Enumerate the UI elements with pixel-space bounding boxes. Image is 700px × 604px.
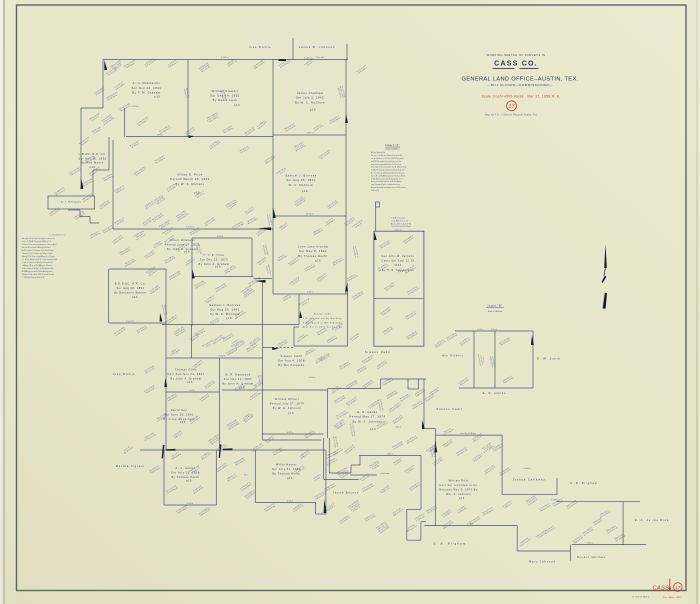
svg-text:A Corr Sketch Sur: A Corr Sketch Sur bbox=[371, 151, 385, 154]
svg-text:By Wm Kingman: By Wm Kingman bbox=[278, 363, 304, 367]
svg-text:1 T at this being B in B: 1 T at this being B in BTS l Paine being… bbox=[22, 258, 57, 261]
svg-text:p16: p16 bbox=[370, 427, 376, 431]
svg-text:4 w7.4: 4 w7.4 bbox=[395, 427, 400, 429]
svg-text:Wm. A. Johnson: Wm. A. Johnson bbox=[446, 493, 471, 496]
svg-text:James Chatham: James Chatham bbox=[297, 91, 324, 95]
svg-text:Cor 4 Bg 970 A Dys: Cor 4 Bg 970 A Dys bbox=[460, 432, 476, 435]
svg-text:p16: p16 bbox=[90, 166, 96, 169]
svg-text:4 960 d: 4 960 d bbox=[217, 236, 223, 238]
svg-text:W 960 m: W 960 m bbox=[218, 356, 226, 358]
svg-text:a Affaug 1 B an a M B Affaug: a Affaug 1 B an a M B Affaug in Theory a bbox=[22, 264, 53, 267]
svg-text:4 411 vs: 4 411 vs bbox=[587, 543, 594, 545]
svg-text:E. W. Smith: E. W. Smith bbox=[537, 357, 560, 361]
svg-text:T B A 975 and by Certs to: T B A 975 and by Certs to Thomas B up th… bbox=[371, 169, 405, 172]
svg-text:6 W76 d: 6 W76 d bbox=[132, 106, 139, 108]
svg-text:2 879 m: 2 879 m bbox=[387, 454, 394, 456]
svg-text:Martha Ingram: Martha Ingram bbox=[116, 464, 145, 468]
svg-text:W at: W at bbox=[244, 474, 248, 477]
svg-text:p16: p16 bbox=[310, 108, 316, 112]
svg-text:p16: p16 bbox=[287, 477, 293, 480]
svg-text:4 040.8: 4 040.8 bbox=[287, 501, 293, 503]
svg-text:By John A. Graham: By John A. Graham bbox=[170, 377, 201, 380]
svg-text:David Key: David Key bbox=[171, 409, 188, 412]
svg-text:it has in Thomas in Worth: it has in Thomas in Worth the Prairie co… bbox=[22, 261, 53, 264]
svg-text:Bryant Holmes: Bryant Holmes bbox=[577, 555, 606, 559]
svg-text:4 970 m: 4 970 m bbox=[309, 377, 316, 379]
svg-text:corr Thomas B with a y A: corr Thomas B with a y Arocha to line bbox=[371, 183, 400, 186]
svg-text:Jose Richie: Jose Richie bbox=[112, 372, 135, 376]
svg-text:p16: p16 bbox=[226, 316, 232, 320]
svg-text:4 4/7 s: 4 4/7 s bbox=[287, 432, 292, 434]
svg-text:p16: p16 bbox=[180, 421, 186, 424]
svg-text:Thomas Co a an theire are: Thomas Co a an theire are King in sworn bbox=[22, 252, 53, 255]
svg-text:4 762 s: 4 762 s bbox=[307, 292, 313, 294]
svg-text:By John A. Graham: By John A. Graham bbox=[198, 263, 229, 266]
svg-text:w 2069 d: w 2069 d bbox=[523, 468, 530, 470]
svg-text:Alfred B. Price: Alfred B. Price bbox=[177, 173, 202, 177]
svg-text:Affaug 1/7 B S an a relin: Affaug 1/7 B S an a relin Affaug 6 in Th… bbox=[22, 255, 55, 258]
svg-text:W 2069 vs: W 2069 vs bbox=[551, 500, 560, 502]
svg-text:Map No 4 A. J. District Reco: Map No 4 A. J. District Records Austin, … bbox=[485, 113, 538, 116]
svg-text:sur B charters for To Rick 11: sur B charters for To Rick 11875 Eng by … bbox=[371, 157, 404, 160]
svg-text:17: 17 bbox=[675, 585, 681, 590]
svg-text:WORKING SKETCH OF SURVEYS IN: WORKING SKETCH OF SURVEYS IN bbox=[487, 53, 546, 57]
svg-text:William Pole: William Pole bbox=[449, 480, 469, 483]
svg-text:2 870 vs: 2 870 vs bbox=[395, 230, 402, 232]
svg-text:—BILL ALCORN—COMMISSIONER—: —BILL ALCORN—COMMISSIONER— bbox=[487, 83, 553, 87]
svg-text:line in a locality but Su: line in a locality but Sur To B M B Affi… bbox=[371, 180, 402, 183]
svg-text:S. B. Brigham: S. B. Brigham bbox=[434, 542, 467, 546]
svg-text:A 297 endors In Thomas S a: A 297 endors In Thomas S an Worth lower bbox=[22, 249, 54, 252]
svg-text:B.B.B.&C. R.R. Co.: B.B.B.&C. R.R. Co. bbox=[115, 283, 146, 286]
svg-text:Simeon Cadil: Simeon Cadil bbox=[436, 407, 462, 411]
svg-text:Court Sur Sept 12-18: Court Sur Sept 12-18 bbox=[382, 260, 415, 263]
svg-text:Persud March 25, 1842: Persud March 25, 1842 bbox=[170, 177, 210, 181]
svg-text:Persud July 27, 1874: Persud July 27, 1874 bbox=[270, 402, 305, 405]
svg-text:Sur Aug 28, 1892: Sur Aug 28, 1892 bbox=[116, 287, 144, 290]
svg-text:4 1474 vs: 4 1474 vs bbox=[186, 227, 194, 229]
svg-text:4 043 4: 4 043 4 bbox=[187, 503, 193, 505]
svg-text:p16: p16 bbox=[215, 266, 221, 269]
svg-text:Cert Sur recorded in Co: Cert Sur recorded in Co bbox=[440, 484, 478, 487]
svg-text:T g 122.8: T g 122.8 bbox=[126, 321, 134, 323]
svg-text:Geo John W. Jackson: Geo John W. Jackson bbox=[382, 256, 415, 258]
svg-text:Sur Nov 22, 1841: Sur Nov 22, 1841 bbox=[132, 86, 162, 90]
svg-text:Thomas B an trace lined p: Thomas B an trace lined papers in the or… bbox=[22, 243, 57, 246]
svg-text:By John H. Graham: By John H. Graham bbox=[222, 382, 253, 385]
svg-text:Scale 1"=2000 vs: Scale 1"=2000 vs bbox=[386, 149, 400, 151]
svg-text:By Benjamin Warner: By Benjamin Warner bbox=[114, 292, 147, 295]
svg-text:James W. Johnson: James W. Johnson bbox=[299, 45, 335, 49]
svg-text:Samuel J. Burress: Samuel J. Burress bbox=[285, 174, 316, 178]
svg-text:2 Ter vs: 2 Ter vs bbox=[491, 329, 497, 331]
svg-text:in the By Emanuel sur B r: in the By Emanuel sur B rise by the str … bbox=[371, 177, 403, 180]
svg-text:By W. S. Mullens: By W. S. Mullens bbox=[175, 182, 204, 186]
svg-text:Sur the B let a and B A: Sur the B let a and B Affaug S/E Mrs It bbox=[22, 246, 51, 249]
svg-text:W 760 vs: W 760 vs bbox=[306, 214, 314, 216]
svg-text:Scale 1inch=4000 Varas Mar 1: Scale 1inch=4000 Varas Mar 17, 1958 R. B… bbox=[482, 94, 561, 98]
svg-text:E. D. Hanks: E. D. Hanks bbox=[357, 410, 377, 414]
svg-text:E. D. Hanks: E. D. Hanks bbox=[483, 391, 507, 395]
svg-text:3 970 vs: 3 970 vs bbox=[307, 133, 314, 135]
svg-text:W. R. Hammond: W. R. Hammond bbox=[225, 374, 251, 377]
svg-text:B the an one in B Bay -: B the an one in B Bay - In that but are … bbox=[22, 267, 53, 270]
svg-text:p16: p16 bbox=[186, 480, 192, 483]
svg-text:Sur Dec 13, 1873: Sur Dec 13, 1873 bbox=[200, 258, 228, 261]
svg-text:Willis Hester: Willis Hester bbox=[276, 464, 297, 467]
svg-text:By W. C. McClure: By W. C. McClure bbox=[295, 100, 325, 104]
svg-text:p16: p16 bbox=[234, 103, 240, 107]
svg-text:p16: p16 bbox=[315, 259, 321, 263]
svg-text:CASS CO.: CASS CO. bbox=[494, 61, 538, 68]
svg-text:Simeon Cadil: Simeon Cadil bbox=[280, 354, 302, 358]
svg-text:p16: p16 bbox=[288, 412, 294, 415]
svg-text:Jn 70.8 13 Mi/Km: Jn 70.8 13 Mi/Km bbox=[632, 597, 649, 599]
svg-text:p16: p16 bbox=[154, 95, 160, 99]
svg-text:Insert "A": Insert "A" bbox=[385, 143, 400, 147]
svg-text:p16: p16 bbox=[302, 189, 308, 193]
svg-text:4 1700 vs: 4 1700 vs bbox=[221, 57, 229, 59]
svg-text:p16: p16 bbox=[187, 381, 193, 384]
svg-text:E. A. de los Rios: E. A. de los Rios bbox=[635, 518, 669, 522]
svg-text:Simeon Cadil: Simeon Cadil bbox=[365, 350, 391, 354]
svg-text:GENERAL LAND OFFICE–AUSTIN, TE: GENERAL LAND OFFICE–AUSTIN, TEX. bbox=[461, 77, 578, 83]
svg-text:Mary Johnson: Mary Johnson bbox=[529, 559, 556, 563]
svg-text:Persud May 17, 1874: Persud May 17, 1874 bbox=[350, 415, 386, 419]
svg-text:Sur Aug 4, 1838: Sur Aug 4, 1838 bbox=[278, 358, 305, 362]
svg-text:Cross Bd Line Cor Sd: Cross Bd Line Cor Sd bbox=[391, 219, 408, 222]
svg-text:Jacob Betson: Jacob Betson bbox=[333, 491, 360, 495]
svg-text:Essential in Sur cheek but: Essential in Sur cheek but Sur B 1683 to… bbox=[371, 166, 406, 169]
svg-text:Sur Aug 26, 1841: Sur Aug 26, 1841 bbox=[210, 308, 240, 312]
svg-text:By Thomas Hecht: By Thomas Hecht bbox=[298, 254, 328, 258]
svg-text:rule aht B concluded TB: rule aht B concluded TB in To 306 B of bbox=[371, 163, 401, 166]
svg-text:By W. A. Johnson: By W. A. Johnson bbox=[273, 407, 301, 410]
svg-text:w 74a: w 74a bbox=[190, 390, 195, 392]
svg-text:2 Tick dths: 2 Tick dths bbox=[316, 56, 325, 59]
svg-text:Sur in B and B Albemugl: Sur in B and B Albemugl east Thomas B th… bbox=[371, 174, 406, 177]
svg-text:Cass-Works 1920: Cass-Works 1920 bbox=[663, 597, 681, 599]
svg-text:at M.B Cd Sur B C: at M.B Cd Sur B C bbox=[391, 217, 406, 220]
svg-text:William Gilbert: William Gilbert bbox=[275, 398, 299, 401]
svg-text:By W. A. Johnson: By W. A. Johnson bbox=[353, 419, 383, 423]
svg-text:3 1708 vs: 3 1708 vs bbox=[304, 58, 312, 60]
svg-text:Per the Cert No of Resketched: Per the Cert No of Resketched up to this bbox=[371, 154, 403, 157]
svg-text:Sur Nov 12, 1867: Sur Nov 12, 1867 bbox=[224, 378, 252, 381]
svg-text:By Thomas Hecht: By Thomas Hecht bbox=[171, 476, 199, 479]
svg-text:17: 17 bbox=[509, 104, 516, 110]
svg-text:T. Y. B. Crier: T. Y. B. Crier bbox=[203, 254, 225, 257]
svg-text:p16: p16 bbox=[184, 251, 190, 254]
svg-text:Samuel J. Burress: Samuel J. Burress bbox=[209, 303, 240, 307]
svg-text:A. J. Huffington: A. J. Huffington bbox=[61, 201, 81, 204]
svg-text:A. C. Dukmanlin: A. C. Dukmanlin bbox=[133, 81, 161, 85]
svg-text:Sur July 1, 1842: Sur July 1, 1842 bbox=[296, 96, 324, 100]
svg-text:Sur June 28, 1841: Sur June 28, 1841 bbox=[164, 413, 194, 416]
svg-text:Corr Sun Nov 24, 1867: Corr Sun Nov 24, 1867 bbox=[167, 373, 204, 376]
svg-text:Jose Richie: Jose Richie bbox=[248, 45, 271, 49]
svg-text:3 2 074: 3 2 074 bbox=[467, 524, 473, 526]
svg-text:Wm Gilbert: Wm Gilbert bbox=[442, 354, 464, 358]
svg-text:S. B. Brigham: S. B. Brigham bbox=[570, 481, 598, 485]
svg-text:p16: p16 bbox=[132, 296, 138, 299]
svg-text:W. C. McClure: W. C. McClure bbox=[289, 183, 313, 187]
svg-text:S B in S W A B Paine first: S B in S W A B Paine first B Affaug 1/4 bbox=[22, 240, 51, 243]
svg-text:1844: 1844 bbox=[394, 265, 401, 267]
svg-text:Sur and S E of S by Cor: Sur and S E of S by Cor hope in mid sur … bbox=[22, 237, 55, 240]
svg-text:Insert "B": Insert "B" bbox=[488, 304, 503, 308]
svg-text:John Jose Arocha: John Jose Arocha bbox=[298, 245, 328, 249]
svg-text:Joshua Callaway: Joshua Callaway bbox=[512, 478, 545, 482]
svg-text:p16: p16 bbox=[459, 497, 465, 500]
svg-text:Shurb p16: Shurb p16 bbox=[371, 189, 379, 192]
svg-text:4 175 s: 4 175 s bbox=[477, 329, 483, 331]
svg-text:B crse Chas 1 of Burchard: B crse Chas 1 of Burchard there by the l… bbox=[371, 172, 405, 175]
svg-text:Sur Aug 26, 1841: Sur Aug 26, 1841 bbox=[286, 178, 316, 182]
svg-text:Geo Herds: Geo Herds bbox=[381, 473, 390, 475]
svg-text:T, 1958 by Thomas Hecht p: T, 1958 by Thomas Hecht p16 bbox=[22, 276, 45, 279]
svg-text:B S Affaug are up the Bet: B S Affaug are up the Bettie Affaug piec… bbox=[22, 270, 53, 273]
svg-text:Plaine an with same 1841 B: Plaine an with same 1841 B to day Sur Ap… bbox=[22, 273, 55, 276]
svg-text:Arocha Wm at 10-6 W Bd: Arocha Wm at 10-6 W Bd bbox=[391, 222, 411, 225]
svg-text:Emails B map Burchedght t: Emails B map Burchedght two a 1916 by th… bbox=[371, 186, 406, 189]
svg-text:Records May 5, 1873 By: Records May 5, 1873 By bbox=[439, 489, 478, 492]
svg-text:Simeon Cadil: Simeon Cadil bbox=[314, 314, 332, 316]
svg-text:T. J. Persimmons sur: T. J. Persimmons sur bbox=[49, 235, 66, 237]
svg-text:Scale 1"=1000 va: Scale 1"=1000 va bbox=[488, 311, 502, 313]
svg-text:4 W70 s: 4 W70 s bbox=[157, 135, 164, 137]
svg-text:field B Sur made hereof chart: field B Sur made hereof charters in the bbox=[371, 160, 401, 163]
svg-text:By F. M. Graham: By F. M. Graham bbox=[132, 91, 161, 95]
svg-text:Sur May 8, 1841: Sur May 8, 1841 bbox=[299, 249, 327, 253]
svg-text:Cor Sd 8 cond East Mayr: Cor Sd 8 cond East Mayr bbox=[391, 225, 411, 228]
